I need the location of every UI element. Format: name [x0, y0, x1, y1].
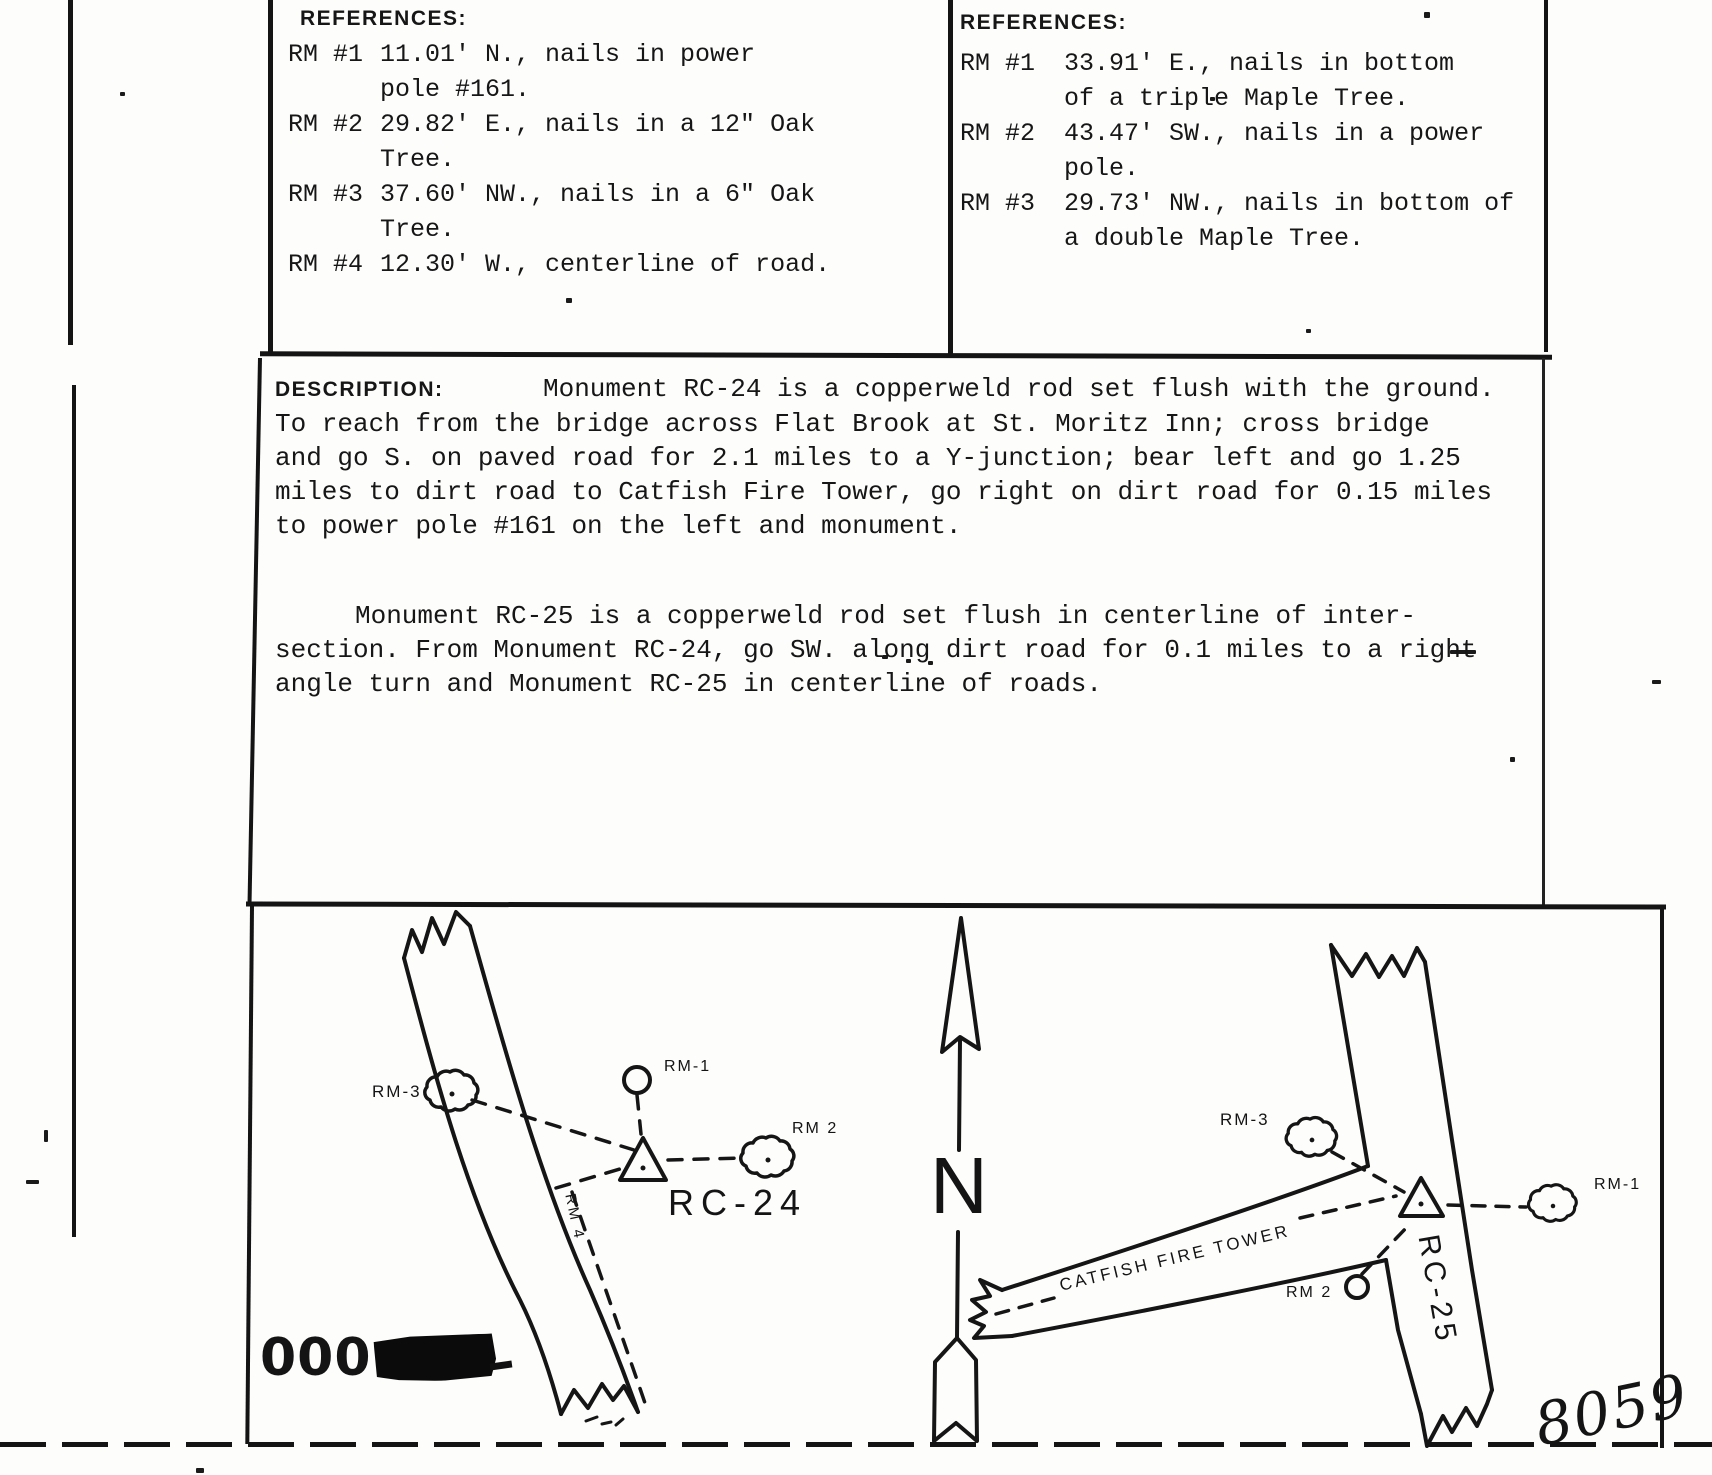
- rm1-label-rc24: RM-1: [664, 1058, 711, 1076]
- rm2-label-rc25: RM 2: [1286, 1284, 1332, 1302]
- road-centerline-dashes: [996, 1298, 1054, 1314]
- road-centerline-dashes: [1300, 1196, 1396, 1218]
- road-footnote-marks: [586, 1417, 623, 1425]
- road-break-top: [404, 912, 470, 958]
- rc24-tie-lines: [472, 1095, 742, 1406]
- rm2-label-rc24: RM 2: [792, 1120, 838, 1138]
- survey-datasheet-scan: REFERENCES: RM #1 11.01' N., nails in po…: [0, 0, 1712, 1475]
- maple-tree-symbol-rm3: [1286, 1118, 1336, 1157]
- road-break-top: [1331, 945, 1425, 977]
- road-break-bottom: [561, 1384, 638, 1414]
- rm3-label-rc24: RM-3: [372, 1082, 422, 1102]
- monument-triangle-rc24: [620, 1138, 666, 1180]
- monument-triangle-rc25: [1400, 1178, 1443, 1216]
- north-letter: N: [930, 1140, 988, 1232]
- sketch-linework: [0, 0, 1712, 1475]
- rc24-symbols: [425, 1067, 794, 1180]
- power-pole-symbol-rm1: [624, 1067, 650, 1093]
- rm3-label-rc25: RM-3: [1220, 1110, 1270, 1130]
- power-pole-symbol-rm2: [1346, 1276, 1368, 1298]
- oak-tree-symbol-rm2: [741, 1136, 794, 1177]
- maple-tree-symbol-rm1: [1529, 1185, 1577, 1222]
- rc25-roads: [970, 945, 1492, 1446]
- north-arrow-fletching: [934, 1338, 977, 1441]
- serial-stamp: 000: [260, 1328, 512, 1388]
- redacted-block: [373, 1333, 496, 1382]
- monument-label-rc24: RC-24: [668, 1182, 807, 1224]
- north-arrow-head: [942, 918, 979, 1052]
- rm1-label-rc25: RM-1: [1594, 1176, 1641, 1194]
- oak-tree-symbol-rm3: [425, 1070, 478, 1111]
- road-break-bottom: [1421, 1390, 1492, 1446]
- serial-number: 000: [260, 1328, 372, 1388]
